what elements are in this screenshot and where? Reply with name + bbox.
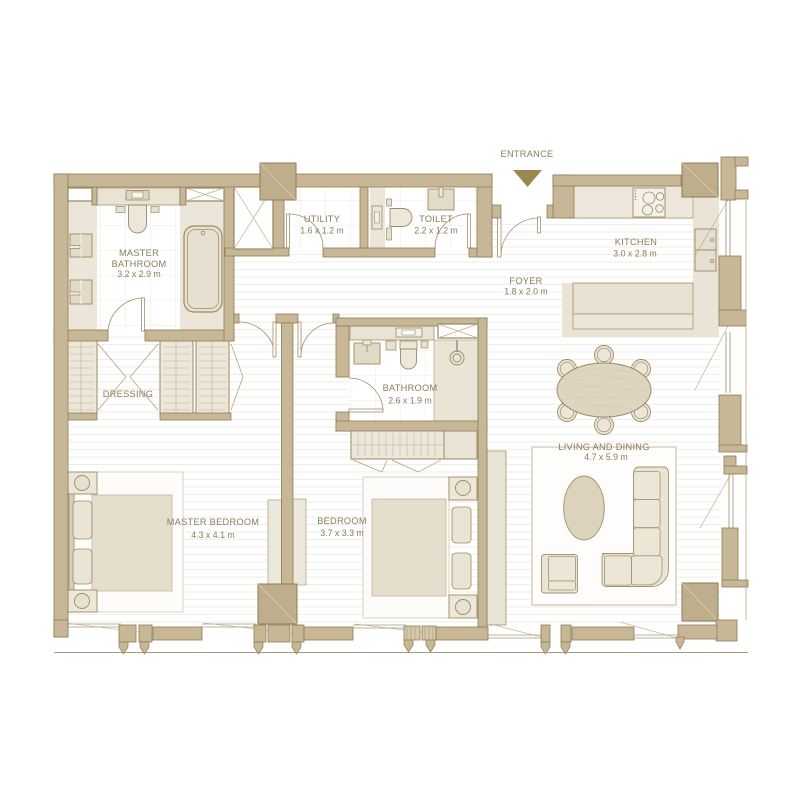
svg-text:TOILET: TOILET <box>419 214 453 224</box>
svg-text:FOYER: FOYER <box>509 276 542 286</box>
svg-text:4.3 x 4.1 m: 4.3 x 4.1 m <box>191 530 235 540</box>
svg-text:BATHROOM: BATHROOM <box>383 383 438 393</box>
svg-text:1.8 x 2.0 m: 1.8 x 2.0 m <box>504 287 548 297</box>
svg-text:4.7 x 5.9 m: 4.7 x 5.9 m <box>584 452 628 462</box>
svg-text:UTILITY: UTILITY <box>304 214 340 224</box>
svg-text:3.0 x 2.8 m: 3.0 x 2.8 m <box>613 249 657 259</box>
svg-text:BEDROOM: BEDROOM <box>317 516 367 526</box>
svg-text:3.7 x 3.3 m: 3.7 x 3.3 m <box>320 528 364 538</box>
svg-text:MASTER BEDROOM: MASTER BEDROOM <box>167 517 260 527</box>
svg-text:3.2 x 2.9 m: 3.2 x 2.9 m <box>117 269 161 279</box>
svg-text:1.6 x 1.2 m: 1.6 x 1.2 m <box>300 226 344 236</box>
svg-text:BATHROOM: BATHROOM <box>112 259 167 269</box>
svg-text:MASTER: MASTER <box>119 248 159 258</box>
svg-text:DRESSING: DRESSING <box>103 389 153 399</box>
svg-text:2.2 x 1.2 m: 2.2 x 1.2 m <box>414 226 458 236</box>
svg-text:LIVING AND DINING: LIVING AND DINING <box>558 442 649 452</box>
svg-text:ENTRANCE: ENTRANCE <box>501 149 554 159</box>
svg-text:2.6 x 1.9 m: 2.6 x 1.9 m <box>388 396 432 406</box>
svg-text:KITCHEN: KITCHEN <box>615 237 657 247</box>
